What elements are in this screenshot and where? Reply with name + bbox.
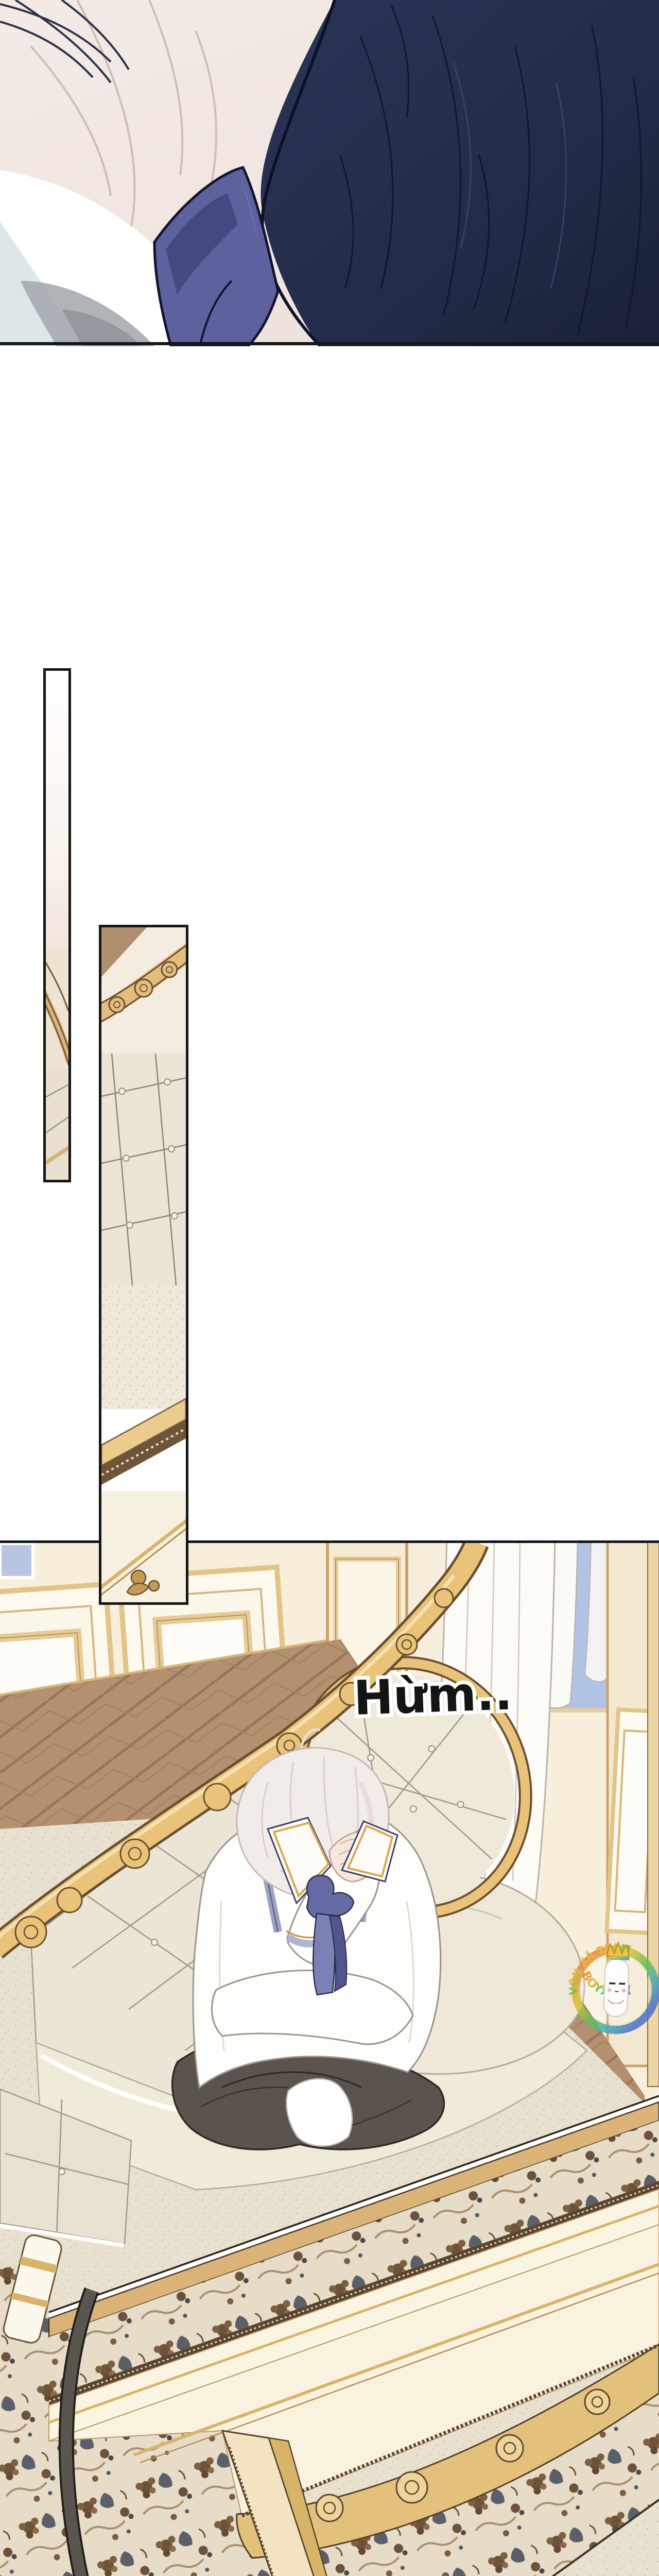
- sliver-small-art: [46, 671, 68, 1180]
- panel-sliver-small: [43, 668, 71, 1182]
- watermark-mascot: [603, 1942, 630, 2017]
- sfx-text: Hừm..: [353, 1665, 513, 1726]
- panel-border: [0, 342, 659, 345]
- panel-room-scene: VÔN XÃ TEAM BOYxBOY Hừm..: [0, 1540, 659, 2576]
- panel-sliver-tall: [99, 925, 188, 1605]
- panel-closeup-hair: [0, 0, 659, 346]
- sock: [286, 2079, 352, 2146]
- sliver-tall-art: [101, 927, 186, 1602]
- comic-page: PHÒNG CỦA SOL: [0, 0, 659, 2576]
